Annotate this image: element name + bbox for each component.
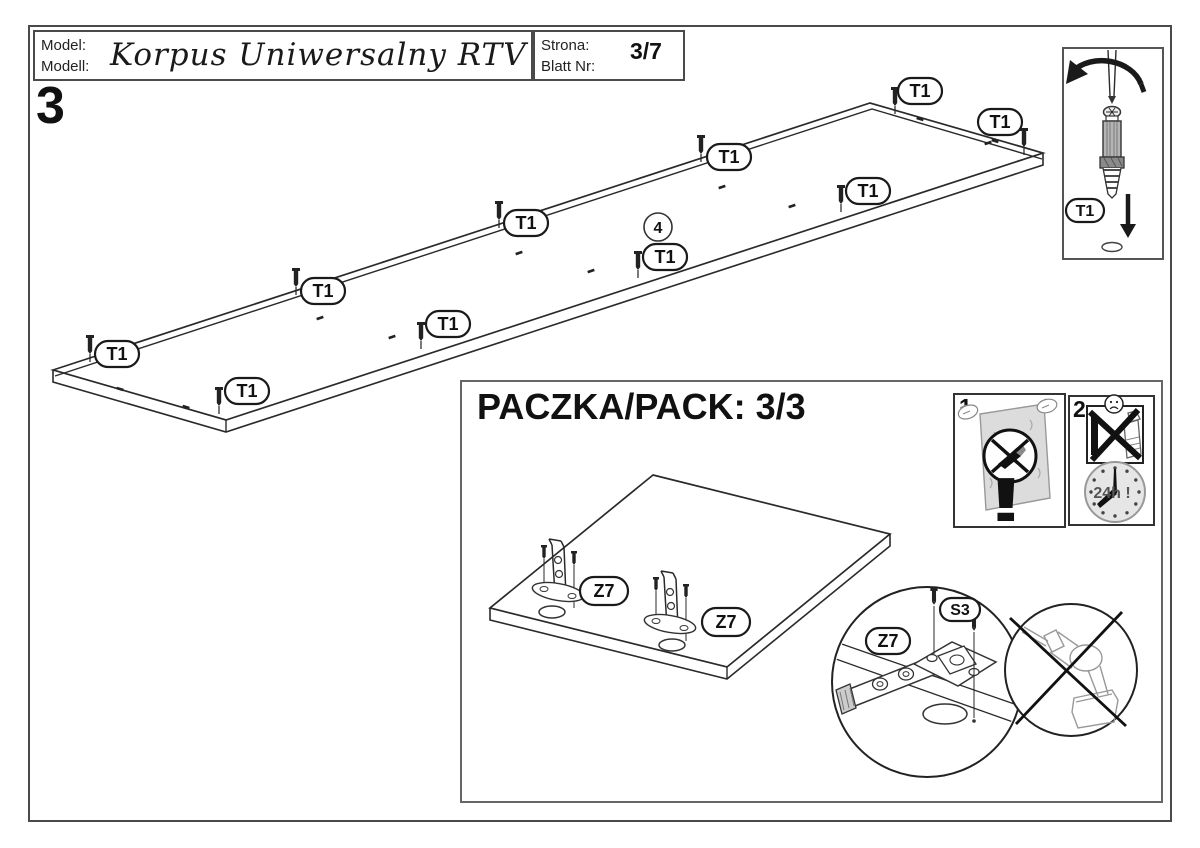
pack-title: PACZKA/PACK: 3/3 (477, 386, 806, 428)
page-labels: Strona: Blatt Nr: (541, 35, 595, 77)
model-labels: Model: Modell: (41, 35, 89, 77)
fastener-detail-box (1062, 47, 1164, 260)
page-number: 3/7 (614, 38, 678, 65)
warning-1-number: 1 (959, 396, 972, 418)
instruction-sheet: Model: Modell: Korpus Uniwersalny RTV 20… (0, 0, 1200, 848)
page-label-de: Blatt Nr: (541, 56, 595, 77)
model-label-pl: Model: (41, 35, 89, 56)
warning-2-number: 2 (1073, 398, 1086, 420)
model-name: Korpus Uniwersalny RTV 200 (110, 33, 525, 77)
model-label-de: Modell: (41, 56, 89, 77)
page-label-pl: Strona: (541, 35, 595, 56)
step-number: 3 (36, 80, 65, 132)
